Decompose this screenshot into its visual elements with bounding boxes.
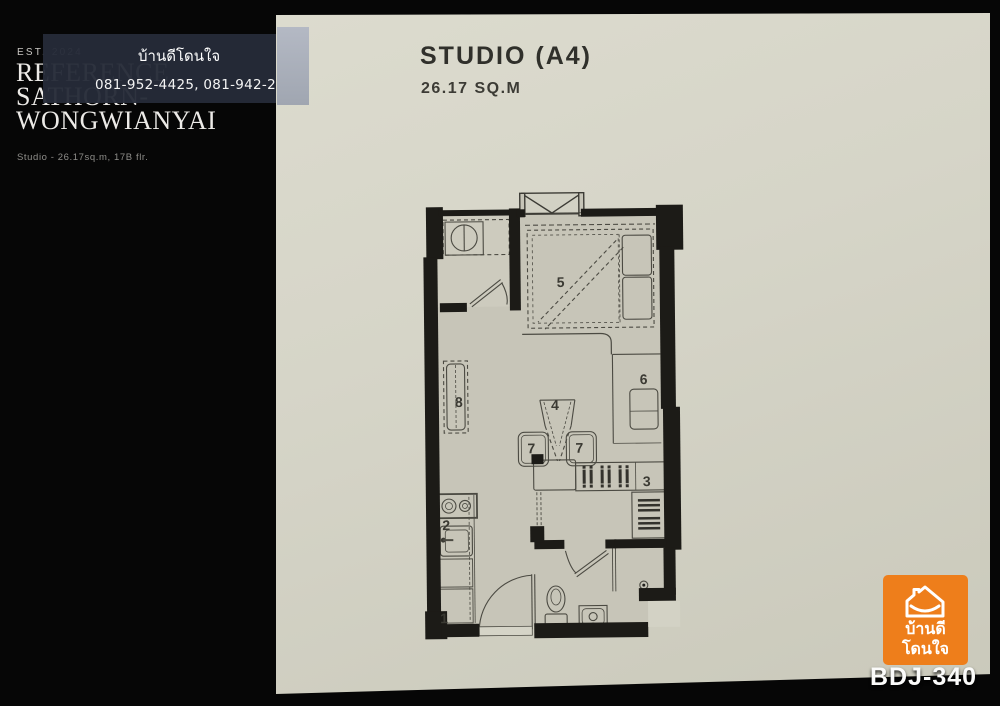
room-label-7a: 7 bbox=[527, 440, 535, 456]
logo-name-line2: โดนใจ bbox=[883, 639, 968, 659]
room-label-3: 3 bbox=[643, 473, 651, 489]
room-label-2: 2 bbox=[442, 517, 450, 533]
room-label-5: 5 bbox=[557, 274, 565, 290]
unit-subtitle: Studio - 26.17sq.m, 17B flr. bbox=[17, 152, 148, 163]
listing-code: BDJ-340 bbox=[870, 663, 990, 692]
brand-line-3: WONGWIANYAI bbox=[16, 109, 216, 133]
plan-notch bbox=[648, 601, 680, 627]
entry-threshold bbox=[479, 626, 532, 636]
room-label-1: 1 bbox=[440, 610, 448, 626]
logo-name-line1: บ้านดี bbox=[883, 619, 968, 639]
agency-phone-numbers: 081-952-4425, 081-942-2426 bbox=[95, 77, 303, 93]
brochure-page: STUDIO (A4) 26.17 SQ.M bbox=[276, 13, 990, 696]
room-label-4: 4 bbox=[551, 397, 559, 413]
agency-logo-badge: บ้านดี โดนใจ bbox=[883, 575, 968, 665]
page-edge-tab bbox=[277, 27, 309, 105]
window-icon bbox=[520, 193, 584, 217]
balcony-floor bbox=[437, 214, 513, 307]
room-label-7b: 7 bbox=[575, 440, 583, 456]
unit-area-label: 26.17 SQ.M bbox=[421, 80, 521, 98]
unit-type-title: STUDIO (A4) bbox=[420, 42, 592, 71]
house-icon bbox=[883, 585, 968, 619]
agency-name-text: บ้านดีโดนใจ bbox=[138, 44, 220, 68]
room-label-6: 6 bbox=[640, 371, 648, 387]
room-label-8: 8 bbox=[455, 394, 463, 410]
floor-plan-drawing: 1 2 3 4 5 6 7 7 8 bbox=[413, 177, 698, 650]
agency-watermark: บ้านดีโดนใจ 081-952-4425, 081-942-2426 bbox=[43, 34, 276, 103]
